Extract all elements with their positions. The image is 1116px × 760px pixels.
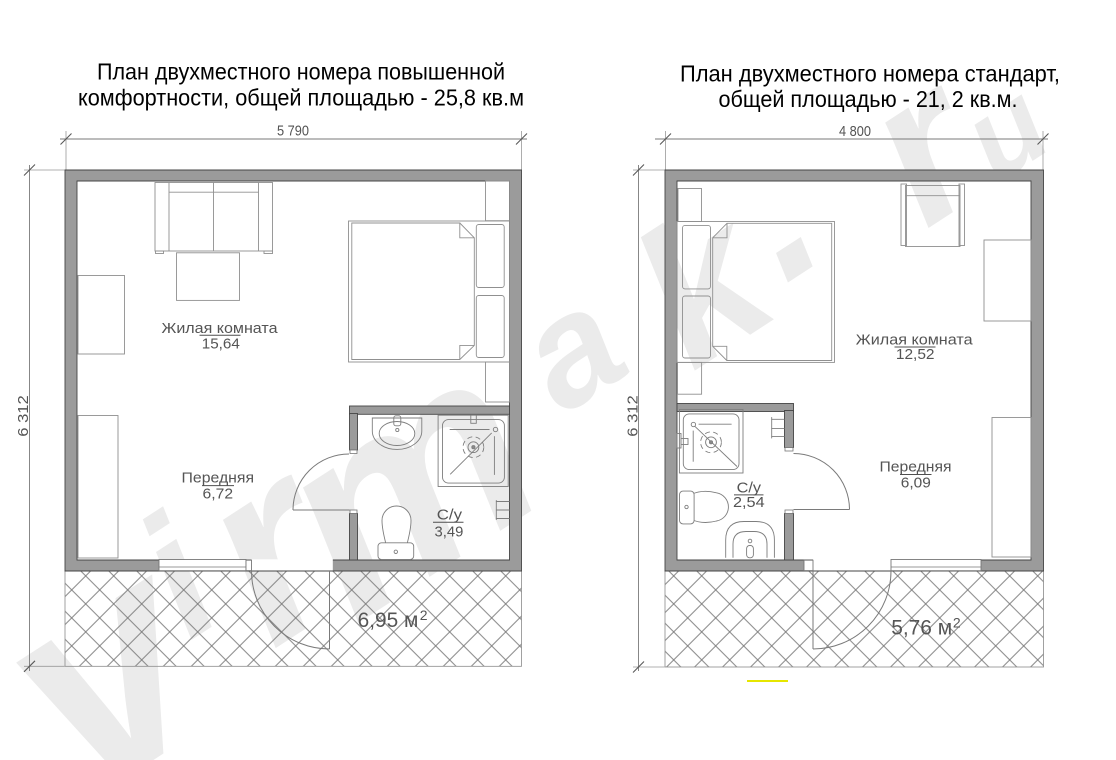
svg-text:План двухместного номера повыш: План двухместного номера повышенной xyxy=(97,59,505,85)
svg-text:12,52: 12,52 xyxy=(896,346,935,363)
svg-text:6,72: 6,72 xyxy=(203,485,234,502)
svg-text:Передняя: Передняя xyxy=(880,458,952,475)
svg-text:4 800: 4 800 xyxy=(839,123,871,140)
svg-text:комфортности, общей площадью -: комфортности, общей площадью - 25,8 кв.м xyxy=(78,85,524,111)
svg-text:2,54: 2,54 xyxy=(733,494,765,511)
svg-text:С/у: С/у xyxy=(437,507,463,524)
svg-text:Жилая комната: Жилая комната xyxy=(162,320,279,337)
svg-text:общей площадью - 21, 2 кв.м.: общей площадью - 21, 2 кв.м. xyxy=(719,86,1018,112)
svg-text:План двухместного номера станд: План двухместного номера стандарт, xyxy=(680,61,1060,87)
svg-text:Передняя: Передняя xyxy=(182,470,255,487)
svg-text:5,76 м: 5,76 м xyxy=(891,616,952,640)
svg-text:6 312: 6 312 xyxy=(15,395,32,437)
svg-text:6,95 м: 6,95 м xyxy=(358,608,419,632)
svg-text:5 790: 5 790 xyxy=(277,123,309,140)
svg-text:6 312: 6 312 xyxy=(625,395,642,437)
svg-text:2: 2 xyxy=(420,607,428,623)
svg-text:3,49: 3,49 xyxy=(435,524,464,541)
svg-text:2: 2 xyxy=(953,615,961,631)
svg-text:15,64: 15,64 xyxy=(202,336,240,353)
svg-text:6,09: 6,09 xyxy=(901,475,931,492)
